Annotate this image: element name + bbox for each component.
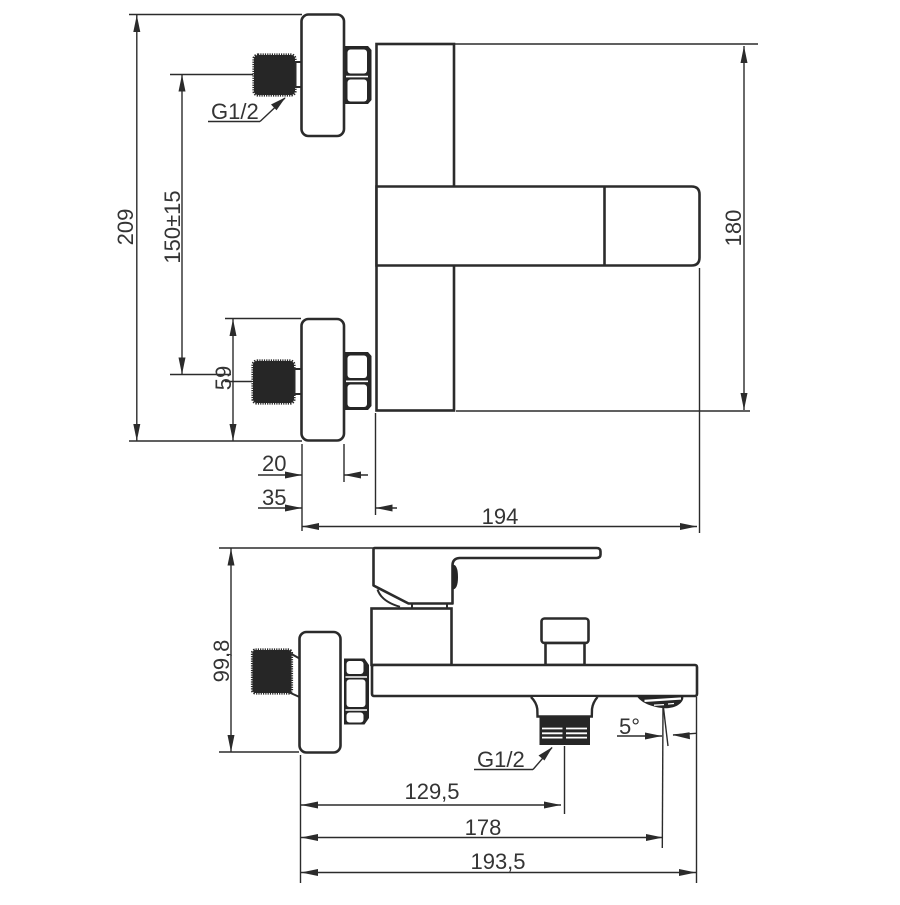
svg-text:G1/2: G1/2 [211, 99, 259, 124]
svg-text:35: 35 [262, 485, 286, 510]
svg-text:209: 209 [113, 209, 138, 246]
svg-text:59: 59 [211, 366, 236, 390]
svg-text:178: 178 [465, 815, 502, 840]
svg-text:193,5: 193,5 [470, 849, 525, 874]
svg-text:180: 180 [721, 210, 746, 247]
svg-text:5°: 5° [619, 714, 640, 739]
svg-text:99,8: 99,8 [209, 640, 234, 683]
svg-text:20: 20 [262, 451, 286, 476]
svg-text:150±15: 150±15 [160, 190, 185, 263]
svg-text:129,5: 129,5 [404, 779, 459, 804]
svg-text:G1/2: G1/2 [477, 747, 525, 772]
svg-text:194: 194 [482, 504, 519, 529]
